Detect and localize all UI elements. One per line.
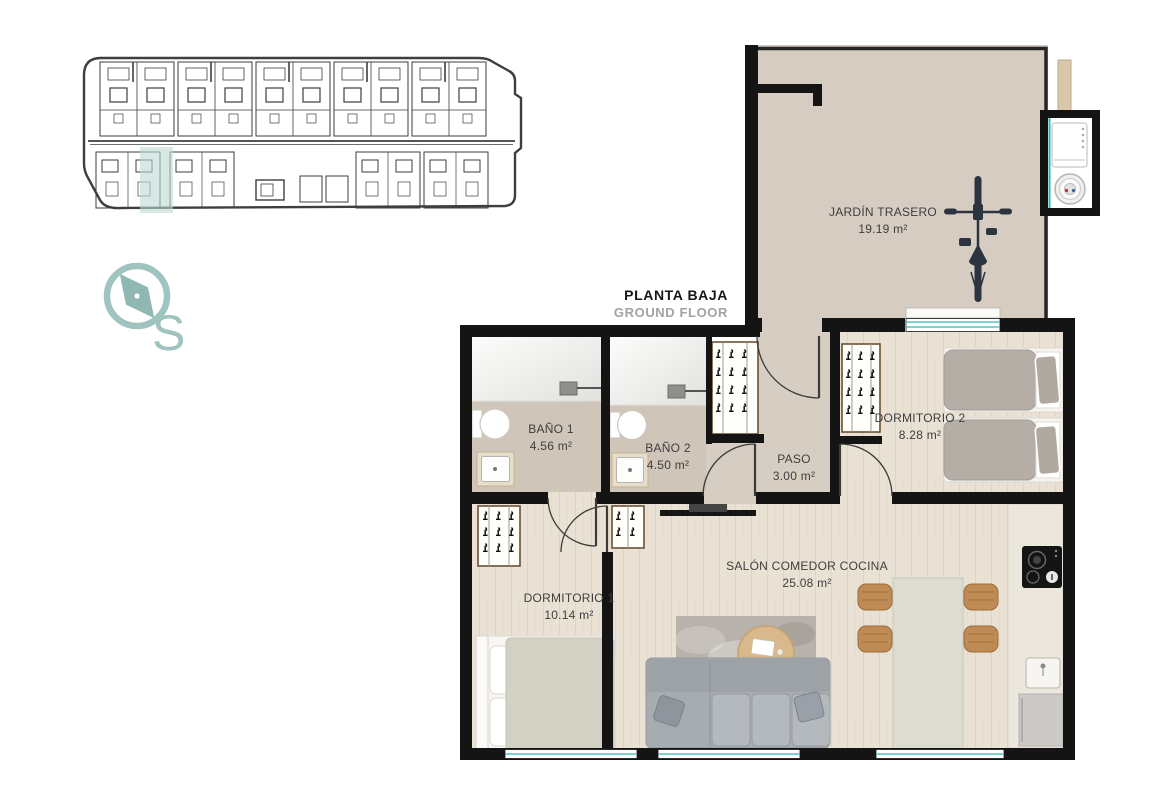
bed-double bbox=[476, 636, 614, 752]
room-label-jardin: JARDÍN TRASERO 19.19 m² bbox=[829, 204, 937, 238]
wardrobe-salon bbox=[612, 506, 644, 548]
bed-twin-1 bbox=[944, 348, 1063, 412]
garden-area bbox=[757, 45, 1100, 318]
window-dorm1 bbox=[505, 750, 637, 759]
shower-head-icon bbox=[668, 385, 685, 398]
wardrobe-dorm1 bbox=[478, 506, 520, 566]
floor-plan-svg bbox=[0, 0, 1170, 785]
window-salon bbox=[658, 750, 800, 759]
chair bbox=[964, 626, 998, 652]
room-label-dorm2: DORMITORIO 2 8.28 m² bbox=[875, 410, 966, 444]
floorplan-page: PLANTA BAJA GROUND FLOOR S JARDÍN TRASER… bbox=[0, 0, 1170, 785]
room-label-bano2: BAÑO 2 4.50 m² bbox=[645, 440, 691, 474]
kitchen-sink-icon bbox=[1026, 658, 1060, 688]
shower-1 bbox=[472, 337, 601, 401]
sofa bbox=[646, 658, 830, 748]
room-label-salon: SALÓN COMEDOR COCINA 25.08 m² bbox=[726, 558, 888, 592]
site-plan bbox=[84, 58, 521, 213]
shower-2 bbox=[610, 337, 706, 405]
window-dining bbox=[876, 750, 1004, 759]
sink-icon bbox=[612, 453, 648, 487]
plan-title-en: GROUND FLOOR bbox=[478, 304, 728, 322]
plan-title: PLANTA BAJA GROUND FLOOR bbox=[478, 286, 728, 322]
dining-table bbox=[893, 578, 963, 756]
chair bbox=[964, 584, 998, 610]
wardrobe-hall bbox=[712, 342, 758, 434]
cooktop-icon bbox=[1022, 546, 1062, 588]
plan-title-es: PLANTA BAJA bbox=[478, 286, 728, 304]
room-label-dorm1: DORMITORIO 1 10.14 m² bbox=[524, 590, 615, 624]
fridge-icon bbox=[1019, 694, 1063, 746]
site-plan-highlighted-unit bbox=[140, 147, 173, 213]
window-dorm2 bbox=[906, 308, 1000, 332]
kitchen bbox=[1008, 504, 1063, 748]
toilet-icon bbox=[480, 409, 510, 439]
room-label-paso: PASO 3.00 m² bbox=[773, 451, 815, 485]
utility-niche bbox=[1040, 110, 1100, 216]
sofa-pillow bbox=[793, 691, 825, 723]
compass-south-label: S bbox=[152, 308, 185, 358]
room-label-bano1: BAÑO 1 4.56 m² bbox=[528, 421, 574, 455]
shower-head-icon bbox=[560, 382, 577, 395]
tv-icon bbox=[689, 504, 727, 512]
sink-icon bbox=[477, 452, 514, 486]
toilet-icon bbox=[618, 411, 647, 440]
chair bbox=[858, 626, 892, 652]
